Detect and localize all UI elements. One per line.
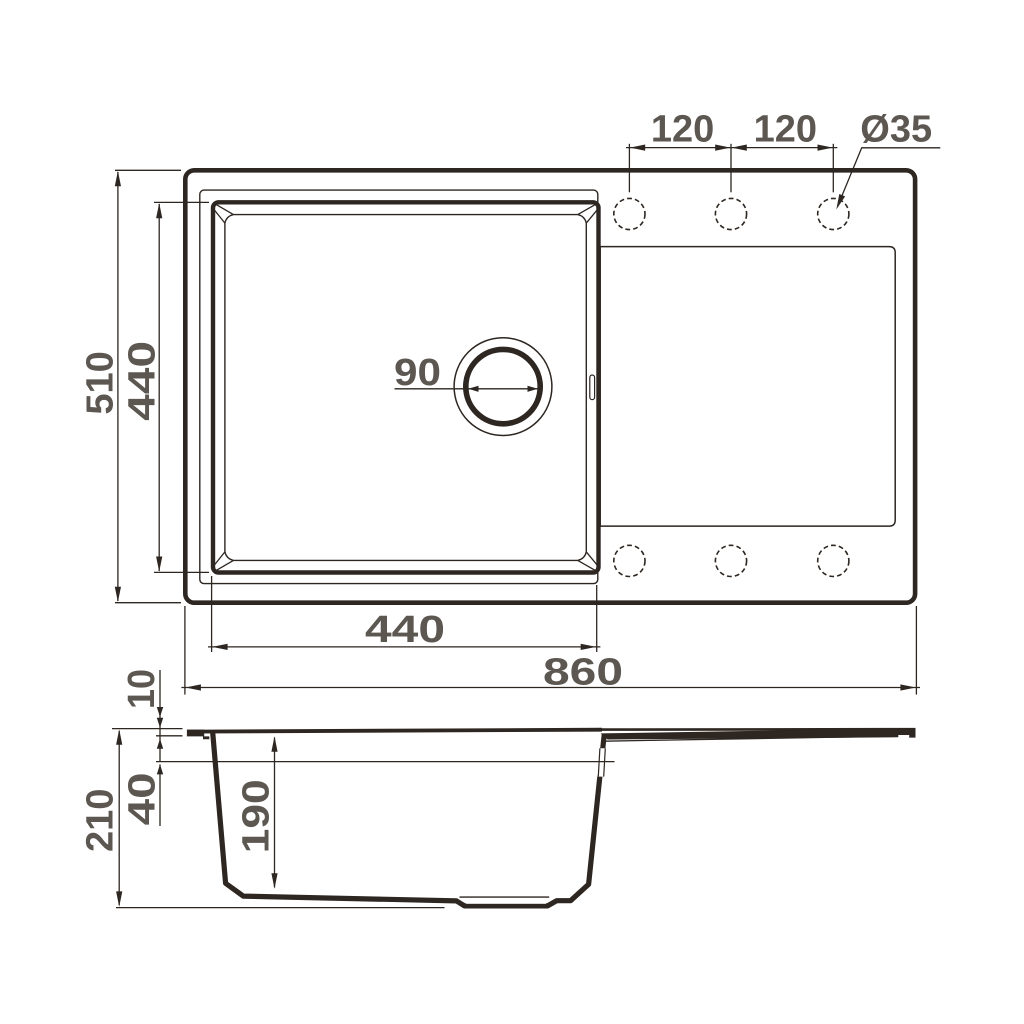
svg-text:190: 190 xyxy=(235,779,277,853)
svg-text:40: 40 xyxy=(121,772,163,825)
svg-text:860: 860 xyxy=(543,651,623,693)
svg-text:120: 120 xyxy=(754,109,817,151)
svg-text:Ø35: Ø35 xyxy=(860,109,932,151)
svg-text:120: 120 xyxy=(651,109,714,151)
svg-text:440: 440 xyxy=(122,341,164,421)
svg-text:90: 90 xyxy=(394,352,441,394)
svg-text:440: 440 xyxy=(365,609,445,651)
svg-text:210: 210 xyxy=(79,789,121,852)
svg-text:510: 510 xyxy=(79,351,121,414)
svg-text:10: 10 xyxy=(121,669,163,709)
